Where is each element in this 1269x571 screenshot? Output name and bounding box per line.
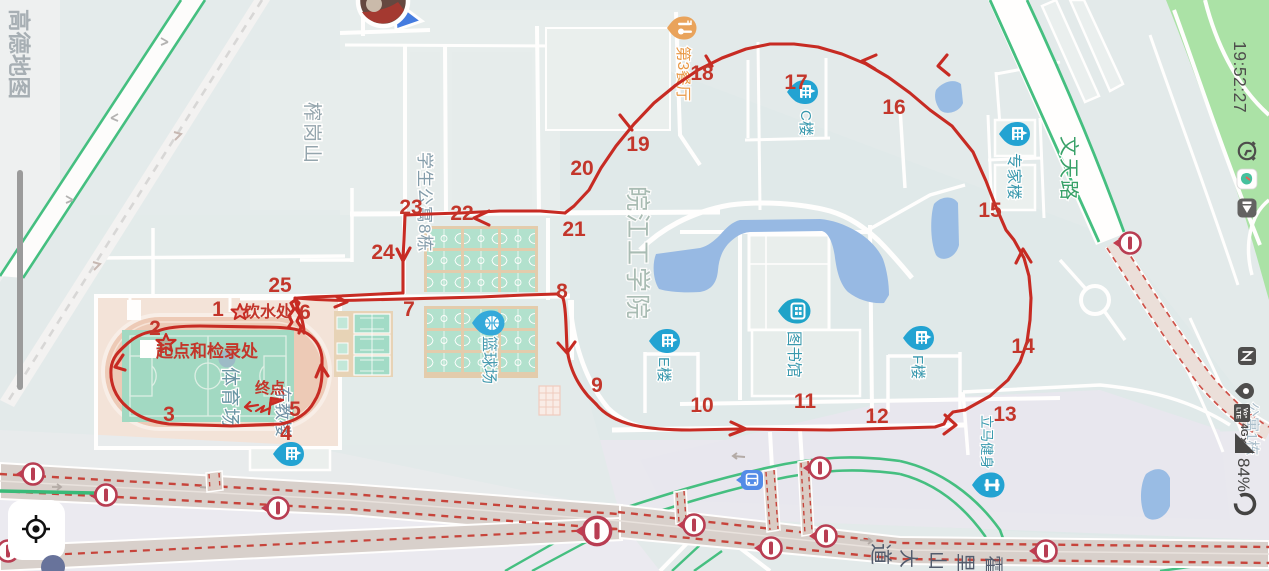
svg-text:高德地图: 高德地图: [6, 9, 32, 99]
